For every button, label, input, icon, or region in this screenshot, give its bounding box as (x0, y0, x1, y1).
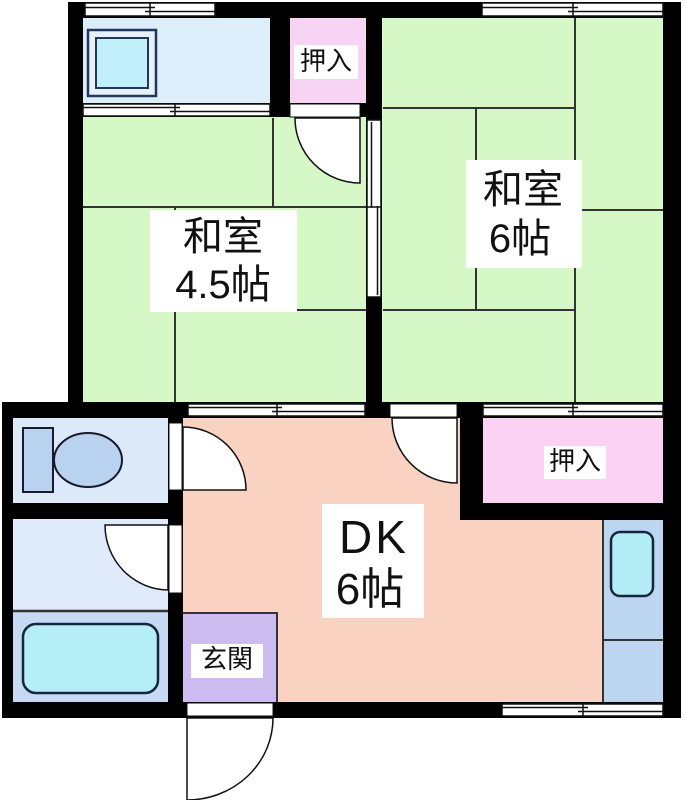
wall-closet-right-left (460, 402, 483, 519)
kitchen-sink (611, 532, 653, 596)
floor-plan-drawing: 和室 4.5帖 和室 6帖 DK 6帖 押入 押入 玄関 (0, 0, 686, 800)
toilet (23, 428, 122, 492)
wall-laundry-closet (270, 16, 290, 104)
label-washitsu-6-line2: 6帖 (489, 217, 551, 261)
label-closet-top: 押入 (294, 45, 358, 79)
sliding-door-room-divider (367, 120, 381, 297)
window-top-right (482, 3, 663, 16)
wall-toilet-bottom (13, 503, 183, 519)
label-washitsu-6-line1: 和室 (483, 168, 563, 212)
doorway-closet-top (290, 104, 360, 117)
sliding-door-closet-right (483, 404, 663, 416)
label-washitsu-6: 和室 6帖 (466, 160, 582, 268)
doorway-entrance (187, 703, 273, 716)
washing-machine-pan (88, 30, 156, 96)
label-closet-right: 押入 (544, 446, 606, 479)
wall-right (663, 2, 681, 718)
doorway-dk-washitsu6 (390, 404, 457, 417)
doorway-washroom (169, 525, 182, 593)
label-dk-line1: DK (339, 511, 409, 563)
sliding-door-dk-washitsu45 (188, 404, 365, 416)
wall-closet-right-bottom (460, 503, 681, 520)
label-closet-right-text: 押入 (549, 446, 601, 476)
label-genkan-text: 玄関 (201, 644, 253, 674)
label-genkan: 玄関 (191, 644, 263, 678)
bathtub (23, 624, 158, 693)
label-dk: DK 6帖 (322, 504, 424, 618)
window-kitchen-bottom (502, 704, 663, 716)
toilet-tank (23, 428, 53, 492)
wall-left-lower (2, 402, 13, 718)
label-washitsu-4-5: 和室 4.5帖 (150, 210, 297, 312)
label-dk-line2: 6帖 (336, 565, 404, 614)
door-arc-entrance (187, 718, 273, 800)
window-laundry-room (83, 104, 270, 116)
toilet-bowl (54, 433, 122, 487)
doorway-toilet (169, 423, 182, 490)
label-washitsu-4-5-line2: 4.5帖 (175, 263, 271, 307)
label-washitsu-4-5-line1: 和室 (183, 215, 263, 259)
label-closet-top-text: 押入 (300, 46, 352, 76)
wall-left-upper (68, 2, 83, 403)
window-top-left (85, 3, 215, 16)
floor-plan: 和室 4.5帖 和室 6帖 DK 6帖 押入 押入 玄関 (0, 0, 686, 800)
